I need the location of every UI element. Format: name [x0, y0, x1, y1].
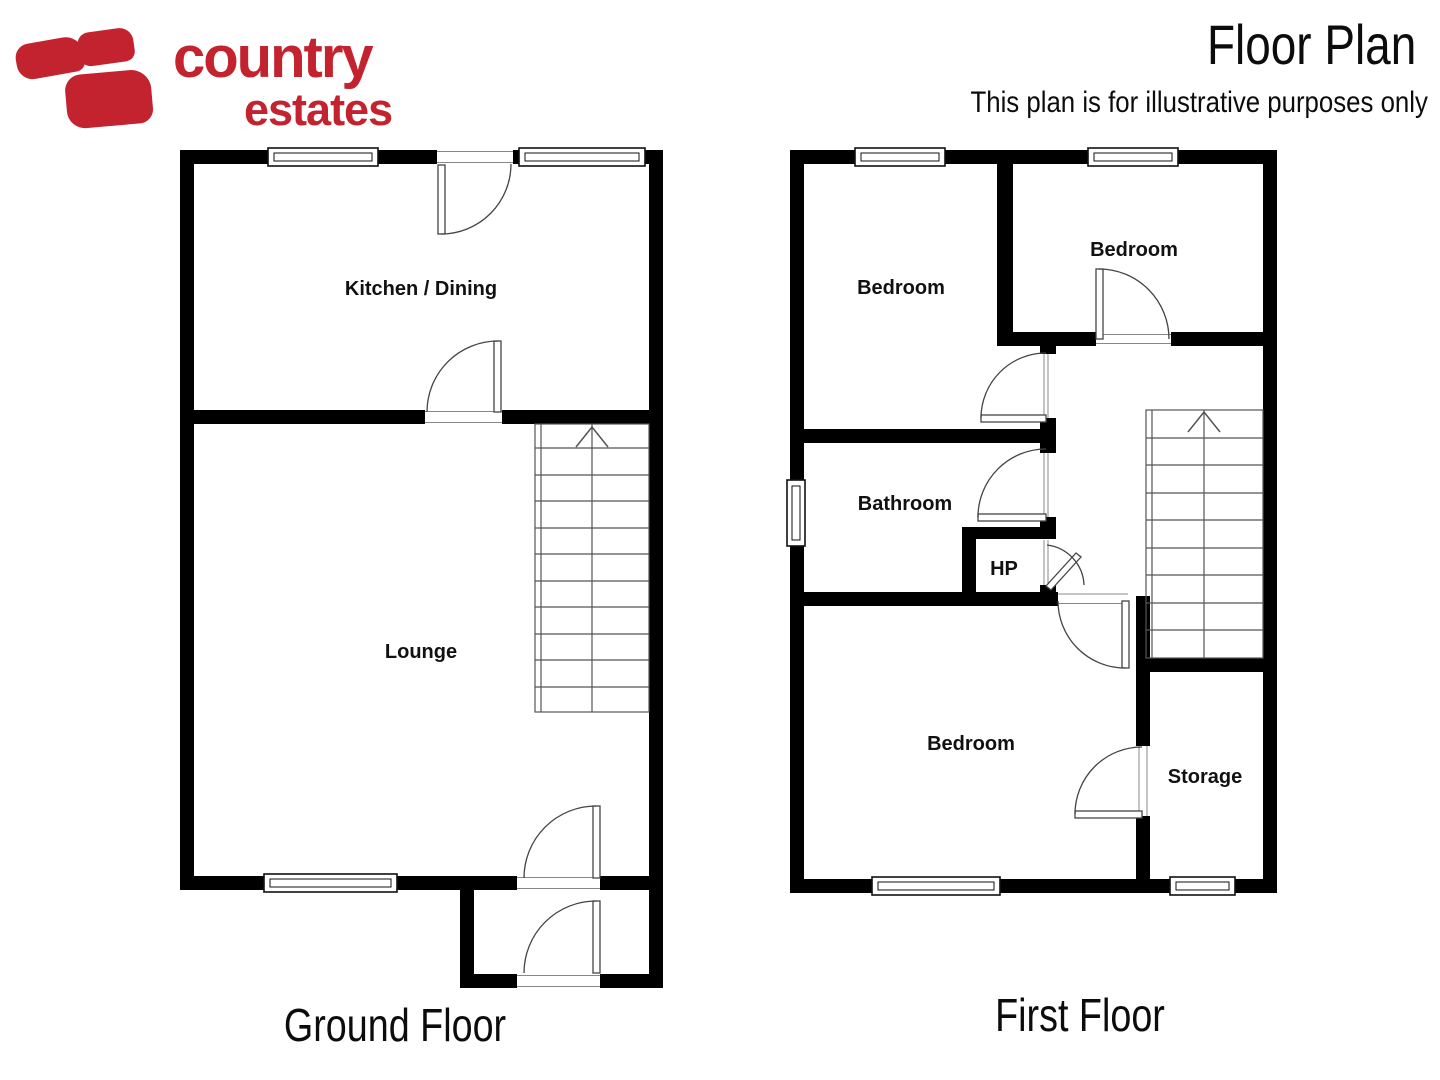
door — [981, 353, 1046, 422]
door — [1058, 601, 1129, 668]
window — [1088, 148, 1178, 166]
room-label-lounge: Lounge — [385, 641, 457, 663]
window — [268, 148, 378, 166]
room-label-storage: Storage — [1168, 766, 1242, 788]
floor-plan-page: country estates Floor Plan This plan is … — [0, 0, 1440, 1080]
window — [787, 480, 805, 546]
window — [519, 148, 645, 166]
ground-windows — [264, 148, 645, 892]
floor-plan-drawing: Kitchen / Dining Lounge — [0, 0, 1440, 1080]
room-label-bathroom: Bathroom — [858, 493, 952, 515]
first-door-openings — [1058, 331, 1171, 607]
room-label-hp: HP — [990, 558, 1018, 580]
door — [978, 449, 1046, 521]
door — [1075, 747, 1142, 818]
first-floor-plan: Bedroom Bedroom Bathroom HP Bedroom Stor… — [787, 148, 1277, 895]
room-label-bedroom-bottom: Bedroom — [927, 733, 1015, 755]
window — [1170, 877, 1235, 895]
window — [872, 877, 1000, 895]
stairs-ground — [535, 424, 649, 712]
room-label-bedroom-right: Bedroom — [1090, 239, 1178, 261]
door — [1096, 269, 1169, 339]
room-label-kitchen-dining: Kitchen / Dining — [345, 278, 497, 300]
door — [438, 164, 511, 234]
ground-walls — [180, 150, 663, 988]
door — [1046, 545, 1084, 590]
room-label-bedroom-left: Bedroom — [857, 277, 945, 299]
door — [427, 341, 501, 412]
window — [264, 874, 397, 892]
door — [524, 806, 600, 878]
door — [524, 901, 600, 973]
window — [855, 148, 945, 166]
ground-opening-reveals — [425, 152, 600, 987]
ground-floor-plan: Kitchen / Dining Lounge — [180, 148, 663, 989]
ground-door-openings — [425, 149, 600, 989]
stairs-first — [1146, 410, 1263, 658]
